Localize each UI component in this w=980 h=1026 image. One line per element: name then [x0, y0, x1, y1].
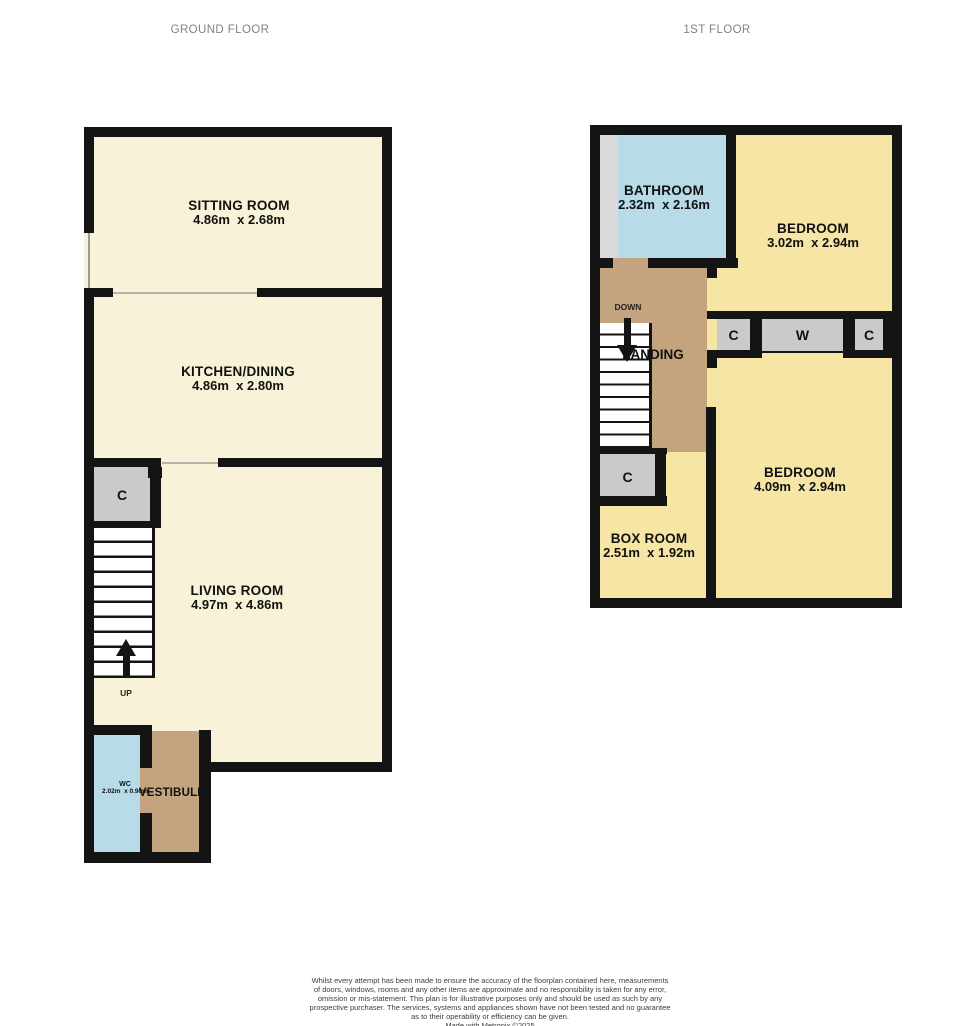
closet-row-wall-bottom-right: [843, 350, 892, 358]
closet-row-wall-bottom-left: [707, 350, 762, 358]
first-floor-title: 1ST FLOOR: [637, 24, 797, 36]
gf-outer-wall-left-lower: [84, 288, 94, 863]
bathroom-wall-bottom-right: [648, 258, 738, 268]
bedroom-top-label: BEDROOM 3.02m x 2.94m: [733, 222, 893, 249]
landing-stub-mid: [707, 358, 717, 368]
ff-closet-c3-label: C: [600, 469, 655, 485]
wall-divider2-left: [84, 458, 157, 467]
landing-label: LANDING: [613, 347, 693, 362]
ff-closet-c2-label: C: [855, 327, 883, 343]
ground-floor-title: GROUND FLOOR: [120, 24, 320, 36]
ff-closet-c3-wall-bottom: [590, 496, 667, 506]
bathroom-wall-right: [726, 135, 736, 268]
floorplan-canvas: GROUND FLOOR 1ST FLOOR UP SITTING ROOM 4…: [0, 0, 980, 1026]
sitting-room-dims: 4.86m x 2.68m: [139, 213, 339, 226]
box-room-dims: 2.51m x 1.92m: [593, 546, 705, 559]
wc-vest-divider-lower: [140, 813, 152, 852]
landing-stub-top: [707, 268, 717, 278]
disclaimer-line: as to their operability or efficiency ca…: [140, 1012, 840, 1021]
bedroom-bottom-label: BEDROOM 4.09m x 2.94m: [720, 466, 880, 493]
up-label: UP: [110, 688, 142, 698]
sitting-kitchen-opening: [113, 292, 257, 294]
gf-closet-wall-bottom: [93, 521, 161, 528]
closet-row-divider1: [750, 319, 762, 352]
up-arrow-icon: [116, 639, 136, 656]
wall-divider1-right: [257, 288, 392, 297]
closet-row-wall-top: [707, 311, 892, 319]
sitting-room-window: [88, 233, 90, 288]
bedroom-bottom-name: BEDROOM: [720, 466, 880, 479]
disclaimer-line: Whilst every attempt has been made to en…: [140, 976, 840, 985]
gf-closet-wall-right: [150, 458, 161, 528]
down-label: DOWN: [600, 302, 656, 312]
down-arrow-stem: [624, 318, 631, 345]
bathroom-door-gap: [613, 258, 648, 268]
bathroom-wall-bottom-left: [590, 258, 613, 268]
wardrobe-door-line: [762, 351, 843, 353]
box-room-label: BOX ROOM 2.51m x 1.92m: [593, 532, 705, 559]
bathroom-name: BATHROOM: [594, 184, 734, 197]
disclaimer-line: omission or mis-statement. This plan is …: [140, 994, 840, 1003]
gf-outer-wall-right: [382, 127, 392, 772]
ff-closet-c3-wall-right: [655, 448, 666, 496]
bedroom-top-name: BEDROOM: [733, 222, 893, 235]
closet-row-divider2: [843, 319, 855, 352]
bedroom-bottom-dims: 4.09m x 2.94m: [720, 480, 880, 493]
living-room-label: LIVING ROOM 4.97m x 4.86m: [137, 584, 337, 611]
kitchen-dims: 4.86m x 2.80m: [138, 379, 338, 392]
gf-outer-wall-bottom-left: [84, 852, 211, 863]
ff-outer-wall-top: [590, 125, 902, 135]
bedroom-top-dims: 3.02m x 2.94m: [733, 236, 893, 249]
gf-outer-wall-bottom-right: [211, 762, 392, 772]
ff-outer-wall-left: [590, 125, 600, 608]
up-arrow-stem: [123, 655, 130, 677]
wc-vest-divider-upper: [140, 730, 152, 768]
disclaimer: Whilst every attempt has been made to en…: [140, 976, 840, 1026]
box-room-name: BOX ROOM: [593, 532, 705, 545]
wall-divider2-right: [218, 458, 392, 467]
ff-outer-wall-right: [892, 125, 902, 608]
kitchen-name: KITCHEN/DINING: [138, 365, 338, 378]
living-room-name: LIVING ROOM: [137, 584, 337, 597]
bathroom-label: BATHROOM 2.32m x 2.16m: [594, 184, 734, 211]
sitting-room-name: SITTING ROOM: [139, 199, 339, 212]
kitchen-living-opening: [162, 462, 218, 464]
ff-wardrobe-label: W: [762, 327, 843, 343]
landing-bedroom-wall: [706, 407, 716, 598]
kitchen-label: KITCHEN/DINING 4.86m x 2.80m: [138, 365, 338, 392]
living-room-dims: 4.97m x 4.86m: [137, 598, 337, 611]
credit-line: Made with Metropix ©2025: [140, 1021, 840, 1026]
vestibule-wall-right: [199, 730, 211, 863]
gf-outer-wall-left-upper: [84, 127, 94, 233]
sitting-room-label: SITTING ROOM 4.86m x 2.68m: [139, 199, 339, 226]
gf-outer-wall-top: [84, 127, 392, 137]
ff-closet-c1-label: C: [717, 327, 750, 343]
disclaimer-line: of doors, windows, rooms and any other i…: [140, 985, 840, 994]
disclaimer-line: prospective purchaser. The services, sys…: [140, 1003, 840, 1012]
bathroom-dims: 2.32m x 2.16m: [594, 198, 734, 211]
ff-outer-wall-bottom: [590, 598, 902, 608]
wall-divider1-left: [84, 288, 113, 297]
gf-closet-label: C: [94, 487, 150, 503]
